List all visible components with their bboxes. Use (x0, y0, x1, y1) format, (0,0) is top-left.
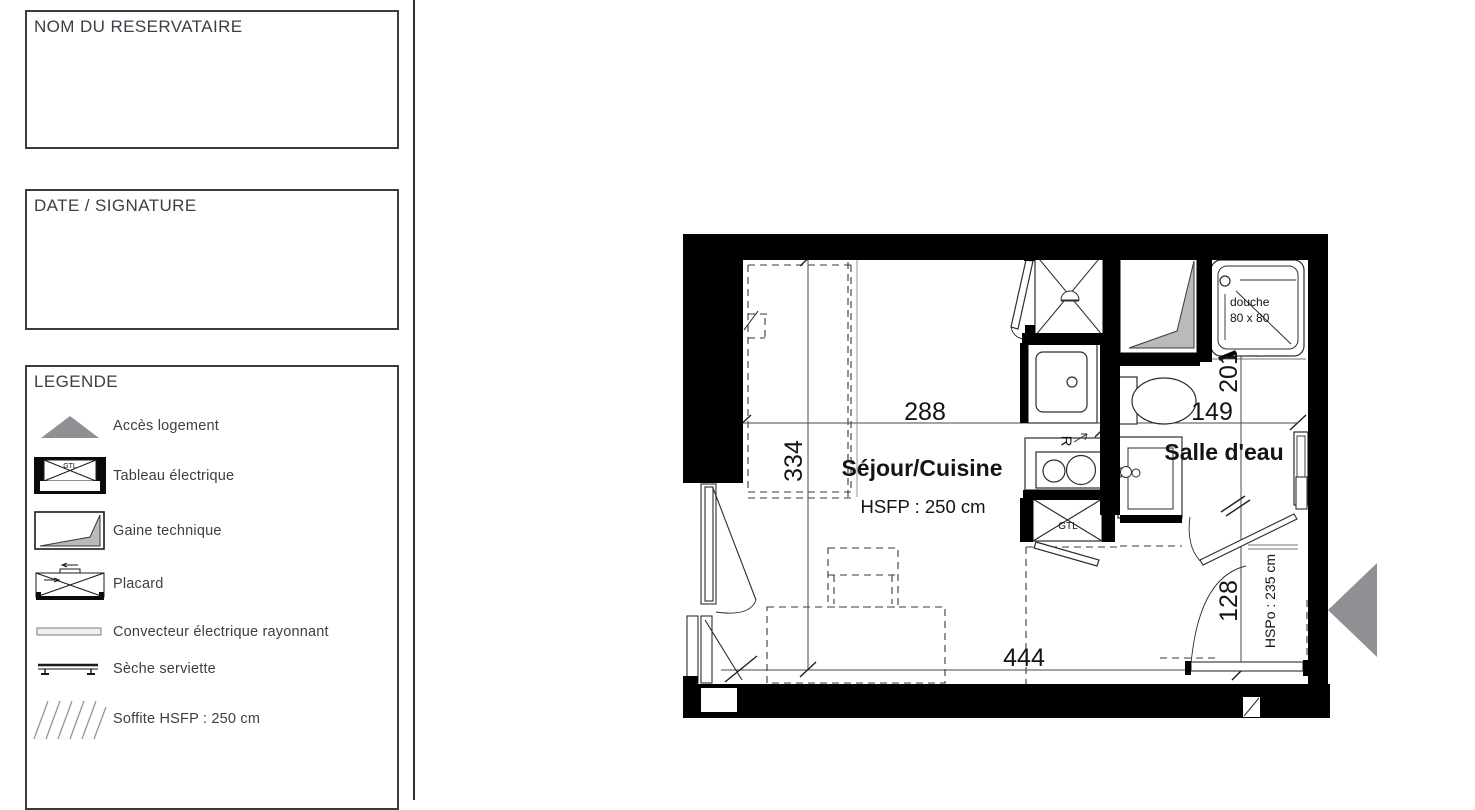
gtl-label: GTL (1058, 521, 1078, 532)
shower-label-1: douche (1230, 295, 1270, 309)
dim-entry: 128 (1215, 580, 1243, 622)
dim-left: 334 (780, 440, 808, 482)
dim-bottom: 444 (1003, 644, 1045, 672)
room-sejour-cuisine: Séjour/Cuisine (841, 455, 1002, 481)
technical-duct (1120, 257, 1197, 353)
fridge-label: R (1058, 436, 1075, 447)
shower-label-2: 80 x 80 (1230, 311, 1270, 325)
access-arrow (1328, 563, 1377, 657)
toilet (1117, 377, 1196, 424)
electrical-panel-gtl (1033, 499, 1102, 566)
room-sejour-ceiling: HSFP : 250 cm (860, 496, 985, 517)
dim-bath-width: 149 (1191, 398, 1233, 426)
entrance-door (1191, 566, 1303, 671)
bathroom-door (1189, 477, 1307, 565)
shower (1211, 260, 1304, 359)
kitchen-sink (1028, 343, 1097, 423)
dim-bath-height: 201 (1215, 351, 1243, 393)
floor-plan-page: { "panel": { "boxes": [ { "title": "NOM … (0, 0, 1475, 800)
window (684, 483, 756, 683)
floor-plan: 288 149 444 334 201 128 HSPo : 235 cm Sé… (0, 0, 1475, 800)
room-salle-eau: Salle d'eau (1164, 439, 1283, 465)
entry-ceiling-label: HSPo : 235 cm (1262, 554, 1278, 648)
closet (1011, 254, 1103, 339)
dim-top: 288 (904, 398, 946, 426)
